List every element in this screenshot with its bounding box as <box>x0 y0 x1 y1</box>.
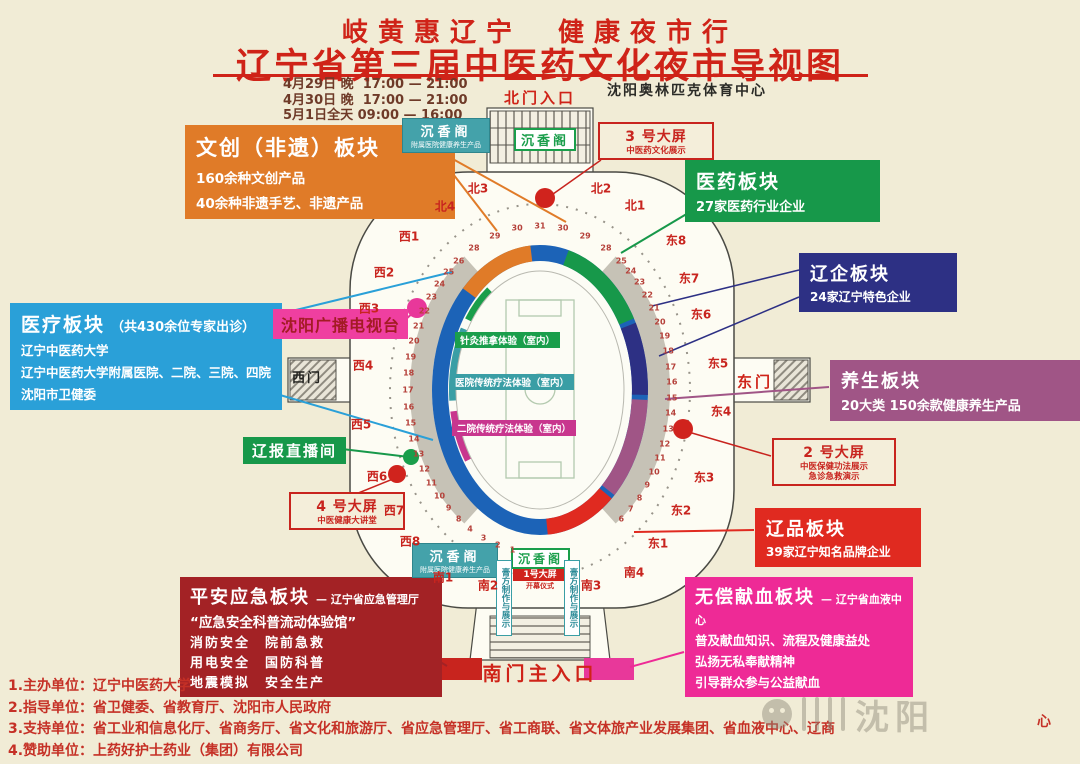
panel-title: 辽企板块 <box>810 260 946 286</box>
organizer-line: 1.主办单位：辽宁中医药大学 <box>8 676 835 698</box>
liaobao-dot <box>403 449 419 465</box>
panel-pharma: 医药板块 27家医药行业企业 <box>685 160 880 222</box>
gate-label: 南3 <box>581 577 601 594</box>
organizer-line: 3.支持单位：省工业和信息化厅、省商务厅、省文化和旅游厅、省应急管理厅、省工商联… <box>8 719 835 741</box>
screen1-label: 1号大屏 开幕仪式 <box>513 566 567 591</box>
gate-label: 东3 <box>694 469 714 486</box>
panel-liaoning-enterprises: 辽企板块 24家辽宁特色企业 <box>799 253 957 312</box>
screen2-callout: 2 号大屏 中医保健功法展示 急诊急救演示 <box>772 438 896 486</box>
organizer-line: 2.指导单位：省卫健委、省教育厅、沈阳市人民政府 <box>8 698 835 720</box>
watermark-text: 沈阳 <box>855 690 935 739</box>
panel-line: 弘扬无私奉献精神 <box>695 651 903 670</box>
gate-label: 北2 <box>591 180 611 197</box>
screen4-dot <box>388 465 406 483</box>
gate-label: 西2 <box>374 264 394 281</box>
gate-label: 西1 <box>399 228 419 245</box>
gate-label: 南1 <box>433 569 453 586</box>
tv-studio-dot <box>407 298 427 318</box>
night-market-guide-map: 岐黄惠辽宁 健康夜市行 辽宁省第三届中医药文化夜市导视图 4月29日 晚 17:… <box>0 0 1080 764</box>
panel-title: 养生板块 <box>841 367 1075 393</box>
chenxiang-pavilion-north-sign: 沉香阁 <box>514 128 576 151</box>
screen-subtitle: 中医药文化展示 <box>606 146 706 156</box>
screen-subtitle: 开幕仪式 <box>513 581 567 591</box>
gate-label: 东5 <box>708 355 728 372</box>
panel-medical: 医疗板块（共430余位专家出诊） 辽宁中医药大学 辽宁中医药大学附属医院、二院、… <box>10 303 282 410</box>
gate-label: 北4 <box>435 198 455 215</box>
screen2-dot <box>673 419 693 439</box>
panel-line: 消防安全 院前急救 <box>190 632 432 651</box>
panel-line: 沈阳市卫健委 <box>21 384 271 403</box>
indoor-zone-acupuncture: 针灸推拿体验（室内） <box>455 332 560 348</box>
panel-line: 辽宁中医药大学 <box>21 340 271 359</box>
panel-line: 用电安全 国防科普 <box>190 652 432 671</box>
panel-title: 沈阳广播电视台 <box>281 312 400 336</box>
page-title: 辽宁省第三届中医药文化夜市导视图 <box>0 38 1080 89</box>
chenxiang-pavilion-north-box: 沉香阁 附属医院健康养生产品 <box>402 118 490 153</box>
east-gate-building <box>774 360 808 400</box>
panel-title: 无偿献血板块 <box>695 587 815 608</box>
panel-title: 医药板块 <box>696 167 869 194</box>
gate-label: 东1 <box>648 535 668 552</box>
panel-line: 辽宁中医药大学附属医院、二院、三院、四院 <box>21 362 271 381</box>
gate-label: 西6 <box>367 468 387 485</box>
field <box>456 271 624 509</box>
screen-title: 3 号大屏 <box>606 126 706 146</box>
panel-line: 40余种非遗手艺、非遗产品 <box>196 192 444 212</box>
chenxiang-pavilion-south-sign: 沉香阁 <box>511 548 570 569</box>
panel-line: 24家辽宁特色企业 <box>810 288 946 305</box>
screen-title: 2 号大屏 <box>780 442 888 462</box>
gate-label: 西8 <box>400 533 420 550</box>
gate-label: 西4 <box>353 357 373 374</box>
east-gate-label: 东门 <box>737 371 773 392</box>
screen-subtitle: 中医健康大讲堂 <box>297 516 397 526</box>
screen3-dot <box>535 188 555 208</box>
organizer-line: 4.赞助单位：上药好护士药业（集团）有限公司 <box>8 741 835 763</box>
event-schedule: 4月29日 晚 17:00 — 21:00 4月30日 晚 17:00 — 21… <box>283 77 468 124</box>
gate-label: 东8 <box>666 232 686 249</box>
screen-subtitle: 中医保健功法展示 <box>780 462 888 472</box>
gate-label: 东6 <box>691 306 711 323</box>
panel-suffix: — 辽宁省应急管理厅 <box>316 593 419 606</box>
panel-title: 辽报直播间 <box>252 440 337 461</box>
gate-label: 北1 <box>625 197 645 214</box>
gate-label: 南2 <box>478 577 498 594</box>
pavilion-title: 沉香阁 <box>406 121 486 140</box>
organizer-info: 1.主办单位：辽宁中医药大学 2.指导单位：省卫健委、省教育厅、沈阳市人民政府 … <box>8 676 835 762</box>
panel-line: 27家医药行业企业 <box>696 196 869 215</box>
panel-liaobao-livestream: 辽报直播间 <box>243 437 346 464</box>
gate-label: 东2 <box>671 502 691 519</box>
panel-subtitle: “应急安全科普流动体验馆” <box>190 611 432 631</box>
venue-name: 沈阳奥林匹克体育中心 <box>607 80 767 100</box>
panel-line: 160余种文创产品 <box>196 167 444 187</box>
panel-line: 普及献血知识、流程及健康益处 <box>695 630 903 649</box>
indoor-zone-second-hospital-therapy: 二院传统疗法体验（室内） <box>452 420 576 436</box>
panel-line: 20大类 150余款健康养生产品 <box>841 395 1075 414</box>
north-entrance-label: 北门入口 <box>504 87 576 108</box>
panel-tv-station: 沈阳广播电视台 <box>273 309 408 339</box>
panel-title: 平安应急板块 <box>190 587 310 608</box>
screen3-callout: 3 号大屏 中医药文化展示 <box>598 122 714 160</box>
gate-label: 北3 <box>468 180 488 197</box>
panel-title: 医疗板块 <box>21 314 105 336</box>
pavilion-subtitle: 附属医院健康养生产品 <box>416 565 494 575</box>
panel-line: 39家辽宁知名品牌企业 <box>766 543 910 560</box>
gate-label: 西5 <box>351 416 371 433</box>
gate-label: 南4 <box>624 564 644 581</box>
panel-liaoning-brands: 辽品板块 39家辽宁知名品牌企业 <box>755 508 921 567</box>
panel-wellness: 养生板块 20大类 150余款健康养生产品 <box>830 360 1080 421</box>
watermark-strokes <box>802 697 845 731</box>
gate-label: 西3 <box>359 300 379 317</box>
pavilion-subtitle: 附属医院健康养生产品 <box>406 140 486 150</box>
gaofang-strip-left: 膏方制作与展示 <box>496 560 512 636</box>
gate-label: 西7 <box>384 502 404 519</box>
pavilion-title: 沉香阁 <box>416 546 494 565</box>
west-gate-label: 西门 <box>292 367 322 386</box>
gate-label: 东7 <box>679 270 699 287</box>
watermark-face-icon <box>762 699 792 729</box>
screen-title: 4 号大屏 <box>297 496 397 516</box>
indoor-zone-hospital-therapy: 医院传统疗法体验（室内） <box>450 374 574 390</box>
chenxiang-pavilion-south-box: 沉香阁 附属医院健康养生产品 <box>412 543 498 578</box>
panel-title: 辽品板块 <box>766 515 910 541</box>
panel-suffix: （共430余位专家出诊） <box>111 320 255 335</box>
watermark: 沈阳 <box>762 688 1072 740</box>
screen-subtitle: 急诊急救演示 <box>780 472 888 482</box>
gate-label: 东4 <box>711 403 731 420</box>
gaofang-strip-right: 膏方制作与展示 <box>564 560 580 636</box>
